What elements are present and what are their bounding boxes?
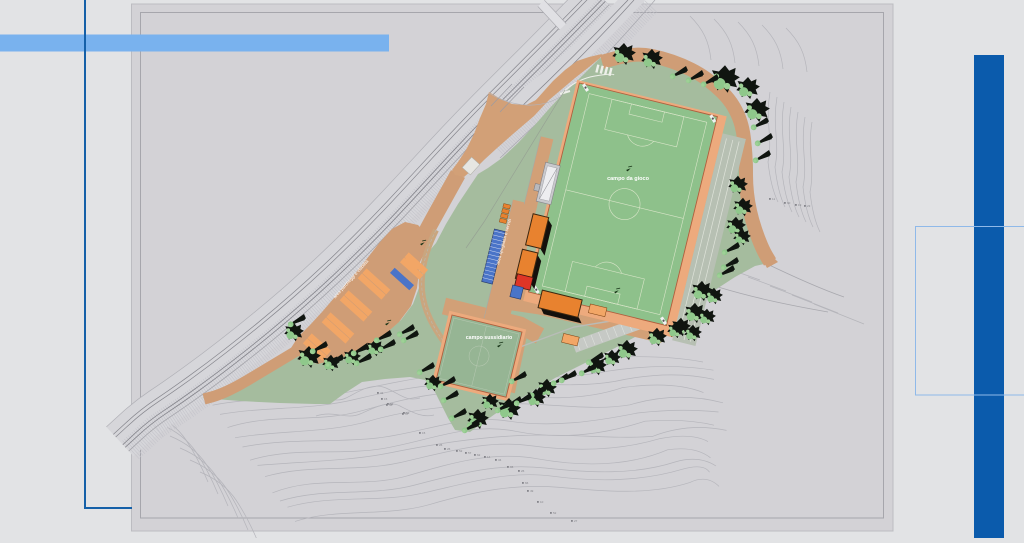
svg-text:19: 19: [798, 203, 802, 207]
svg-text:campo da gioco: campo da gioco: [607, 176, 650, 182]
svg-text:23: 23: [807, 204, 811, 208]
svg-text:62: 62: [477, 453, 481, 457]
svg-text:14: 14: [487, 455, 491, 459]
svg-text:10: 10: [540, 500, 544, 504]
svg-text:campo sussidiario: campo sussidiario: [466, 335, 513, 341]
svg-text:49: 49: [530, 489, 534, 493]
svg-text:52: 52: [553, 511, 557, 515]
svg-text:65: 65: [510, 465, 514, 469]
svg-text:15: 15: [422, 431, 426, 435]
svg-text:26: 26: [447, 447, 451, 451]
svg-text:57: 57: [468, 451, 472, 455]
svg-text:15: 15: [384, 397, 388, 401]
svg-text:57: 57: [405, 412, 409, 416]
svg-text:41: 41: [380, 391, 384, 395]
svg-text:27: 27: [574, 519, 578, 523]
svg-text:56: 56: [389, 403, 393, 407]
svg-text:11: 11: [772, 197, 775, 201]
svg-text:52: 52: [459, 449, 463, 453]
svg-text:26: 26: [439, 443, 443, 447]
svg-text:26: 26: [521, 469, 525, 473]
svg-text:66: 66: [525, 481, 529, 485]
svg-text:60: 60: [787, 201, 791, 205]
svg-text:34: 34: [498, 458, 502, 462]
